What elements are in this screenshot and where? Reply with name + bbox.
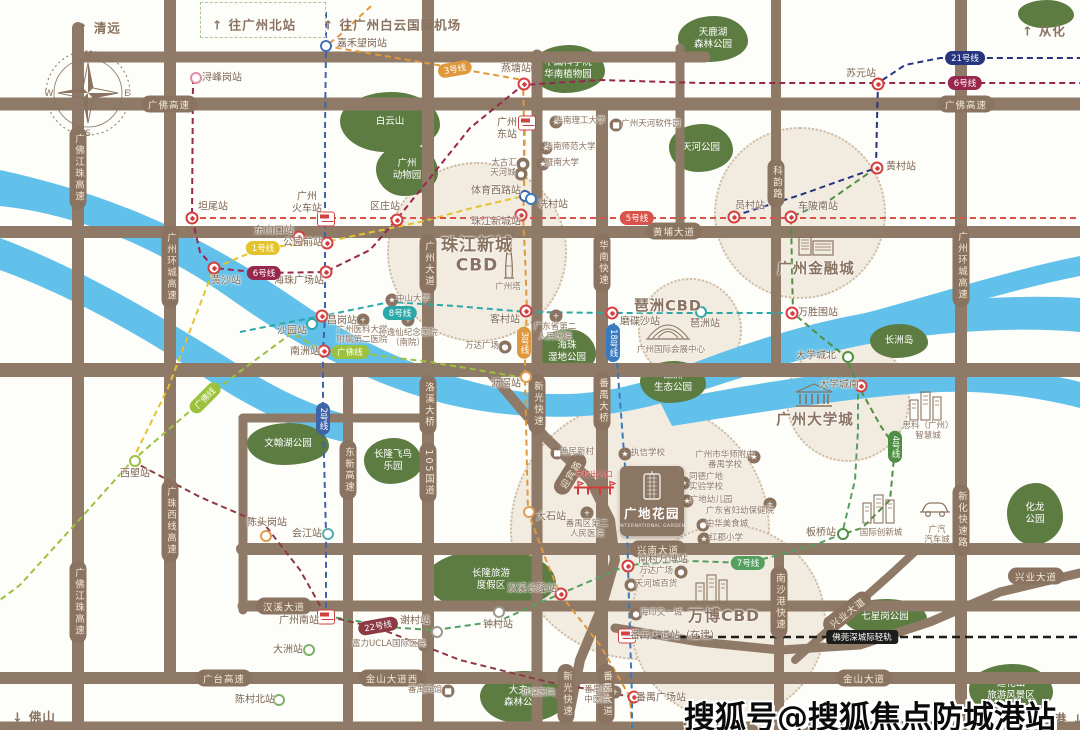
road-label: 番禺大桥 — [594, 371, 611, 431]
station-label: 体育西路站 — [471, 185, 521, 197]
district-label: 广州大学城 — [776, 413, 854, 430]
district-label: 万博CBD — [688, 608, 760, 626]
road-label: 东新高速 — [340, 440, 357, 500]
landmark-label: 国际创新城 — [860, 529, 903, 539]
mall-icon: ● — [499, 341, 512, 354]
station-label: 西塱站 — [120, 468, 150, 480]
landmark-label: 执信学校 — [631, 449, 665, 459]
gate-label: 学校出入口 — [572, 469, 616, 480]
landmark-label: 渔民新村 — [560, 448, 594, 458]
landmark-label: 广汽 汽车城 — [924, 526, 950, 546]
property-subtitle: INTERNATIONAL GARDEN — [619, 524, 686, 529]
line-badge: 7号线 — [731, 556, 765, 570]
landmark-label: 祈福医院 — [521, 689, 555, 699]
metro-station-icon[interactable] — [493, 606, 505, 618]
landmark-label: 广州天河软件园 — [621, 120, 681, 130]
station-label: 谢村站 — [400, 615, 430, 627]
road-label: 广州环城高速 — [953, 225, 970, 308]
landmark-label: 暨南大学 — [545, 159, 579, 169]
road-label: 科韵路 — [768, 159, 785, 208]
station-label: 番禺广场站 — [636, 692, 686, 704]
landmark-label: 番禺宾馆 — [408, 686, 442, 696]
metro-station-icon[interactable] — [320, 40, 332, 52]
road-label: 广州大道 — [420, 234, 437, 294]
station-label: 广州 东站 — [497, 118, 517, 141]
station-label: 大石站 — [536, 511, 566, 523]
metro-station-icon[interactable] — [525, 193, 537, 205]
metro-station-icon[interactable] — [837, 528, 849, 540]
station-label: 冼村站 — [538, 199, 568, 211]
metro-station-icon[interactable] — [606, 307, 619, 320]
road-label: 新光快速 — [558, 664, 575, 724]
metro-station-icon[interactable] — [842, 351, 854, 363]
metro-station-icon[interactable] — [129, 455, 141, 467]
landmark-label: 广东省妇幼保健院 — [706, 507, 774, 517]
station-label: 大洲站 — [273, 644, 303, 656]
station-label: 陈村北站 — [235, 694, 275, 706]
station-label: 大学城北 — [796, 350, 836, 362]
station-label: 广州 火车站 — [292, 192, 322, 215]
property-gate: 学校出入口 — [572, 469, 616, 500]
station-label: 苏元站 — [846, 68, 876, 80]
svg-text:N: N — [85, 50, 92, 60]
landmark-label: 华南师范大学 — [544, 143, 595, 153]
station-label: 嘉禾望岗站 — [337, 38, 387, 50]
metro-station-icon[interactable] — [208, 262, 221, 275]
road-label: 广佛高速 — [938, 96, 994, 113]
building-icon: ■ — [442, 685, 455, 698]
station-label: 番禺大道站（在建） — [630, 630, 720, 642]
property-name: 广地花园 — [624, 503, 680, 522]
landmark-label: 华南理工大学 — [554, 117, 605, 127]
station-label: 南村万博站 — [638, 554, 688, 566]
station-label: 钟村站 — [483, 619, 513, 631]
road-label: 金山大道 — [836, 670, 892, 687]
metro-station-icon[interactable] — [871, 162, 884, 175]
district-label: 珠江新城 CBD — [441, 236, 513, 275]
station-label: 汉溪长隆站 — [507, 583, 557, 595]
landmark-label: 番禺区第二 人民医院 — [566, 520, 609, 540]
metro-station-icon[interactable] — [520, 305, 533, 318]
station-label: 客村站 — [490, 314, 520, 326]
direction-arrow: ↑ 往广州北站 — [212, 15, 296, 34]
hospital-icon: + — [581, 507, 594, 520]
road-label: 新化快速路 — [953, 484, 970, 556]
mall-icon: ● — [515, 168, 528, 181]
road-label: 金山大道西 — [359, 670, 426, 687]
road-label: 南沙港快速 — [771, 566, 788, 638]
landmark-label: 同德广地 实验学校 — [689, 473, 723, 493]
station-label: 珠江新城站 — [471, 216, 521, 228]
line-badge: 广佛线 — [331, 345, 369, 359]
svg-text:E: E — [124, 89, 130, 99]
road-label: 广珠西线高速 — [162, 480, 179, 563]
metro-station-icon[interactable] — [190, 72, 202, 84]
road-label: 广佛江珠高速 — [70, 127, 87, 210]
station-label: 会江站 — [292, 528, 322, 540]
property-building-icon — [640, 471, 664, 501]
direction-arrow: ↑ 从化 — [1022, 21, 1066, 40]
line-badge: 5号线 — [620, 211, 654, 225]
skyline-icon — [859, 491, 899, 529]
metro-station-icon[interactable] — [520, 371, 532, 383]
station-label: 陈头岗站 — [247, 517, 287, 529]
landmark-label: 广地幼儿园 — [690, 496, 733, 506]
line-badge: 8号线 — [383, 306, 417, 320]
metro-station-icon[interactable] — [518, 78, 531, 91]
landmark-label: 万达广场 — [639, 567, 673, 577]
landmark-label: 海印又一城 — [640, 609, 683, 619]
metro-station-icon[interactable] — [786, 307, 799, 320]
line-badge: 6号线 — [948, 76, 982, 90]
station-label: 广州南站 — [279, 615, 319, 627]
line-badge: 4号线 — [888, 431, 902, 463]
station-label: 海珠广场站 — [274, 275, 324, 287]
landmark-label: 番禺区 中医院 — [584, 686, 610, 706]
road-label: 105国道 — [420, 442, 437, 503]
road-label: 洛溪大桥 — [420, 375, 437, 435]
station-label: 万胜围站 — [798, 307, 838, 319]
station-label: 坦尾站 — [198, 201, 228, 213]
landmark-label: 红郡小学 — [709, 534, 743, 544]
metro-station-icon[interactable] — [391, 214, 404, 227]
station-label: 东山口站 — [254, 225, 294, 237]
metro-station-icon[interactable] — [260, 530, 272, 542]
station-label: 沙园站 — [277, 325, 307, 337]
railway-station-icon[interactable] — [518, 116, 536, 131]
line-badge: 2号线 — [316, 403, 330, 435]
metro-station-icon[interactable] — [303, 644, 315, 656]
skyline-icon — [692, 571, 732, 609]
station-label: 南洲站 — [290, 346, 320, 358]
line-badge: 6号线 — [247, 266, 281, 280]
road-label: 广佛江珠高速 — [70, 561, 87, 644]
station-label: 区庄站 — [370, 201, 400, 213]
road-label: 华南快速 — [594, 233, 611, 293]
watermark: 搜狐号@搜狐焦点防城港站 — [684, 692, 1056, 730]
mall-icon: ● — [675, 566, 688, 579]
metro-station-icon[interactable] — [728, 211, 741, 224]
road-label: 广佛高速 — [141, 96, 197, 113]
station-label: 大学城南 — [819, 379, 859, 391]
direction-arrow: ↓ 佛山 — [12, 707, 56, 726]
metro-station-icon[interactable] — [431, 626, 443, 638]
landmark-label: 广东省第二 人民医院 — [534, 323, 577, 343]
road-label: 新光快速 — [529, 374, 546, 434]
school-icon: ★ — [619, 448, 632, 461]
landmark-label: 天河城百货 — [635, 580, 678, 590]
station-label: 车陂南站 — [798, 201, 838, 213]
compass-icon: N S E W — [42, 47, 134, 143]
metro-line — [132, 461, 632, 697]
road-label: 汉溪大道 — [256, 598, 312, 615]
landmark-label: 孙逸仙纪念医院 （南院） — [378, 329, 438, 349]
metro-station-icon[interactable] — [622, 560, 635, 573]
line-badge: 21号线 — [945, 51, 985, 65]
landmark-label: 广州国际会展中心 — [637, 346, 705, 356]
metro-station-icon[interactable] — [306, 318, 318, 330]
metro-line — [734, 58, 1080, 216]
station-label: 员村站 — [735, 200, 765, 212]
station-label: 板桥站 — [806, 527, 836, 539]
metro-station-icon[interactable] — [322, 528, 334, 540]
road-label: 兴业大道 — [1008, 568, 1064, 585]
road-label: 广台高速 — [196, 670, 252, 687]
metro-station-icon[interactable] — [186, 212, 199, 225]
metro-station-icon[interactable] — [523, 506, 535, 518]
property-card[interactable]: 广地花园 INTERNATIONAL GARDEN — [620, 466, 684, 536]
district-label: 广州金融城 — [777, 262, 855, 279]
line-badge: 1号线 — [246, 241, 280, 255]
road-label: 广州环城高速 — [162, 226, 179, 309]
landmark-label: 中华美食城 — [706, 520, 749, 530]
landmark-label: 思科（广州） 智慧城 — [902, 422, 953, 442]
station-label: 公园前站 — [283, 237, 323, 249]
road-label: 黄埔大道 — [646, 223, 702, 240]
station-label: 燕塘站 — [501, 63, 531, 75]
landmark-label: 广州市华师附中 番禺学校 — [695, 451, 755, 471]
direction-arrow: ↑ 清远 — [77, 18, 121, 37]
landmark-label: 万达广场 — [465, 342, 499, 352]
station-label: 黄沙站 — [211, 275, 241, 287]
station-label: 沥滘站 — [491, 378, 521, 390]
railway-station-icon[interactable] — [317, 610, 335, 625]
direction-arrow: ↑ 往广州白云国际机场 — [323, 15, 461, 34]
car-icon — [918, 500, 952, 522]
station-label: 琶洲站 — [690, 318, 720, 330]
intercity-badge: 佛莞深城际轻轨 — [826, 630, 898, 644]
line-badge: 3号线 — [517, 327, 531, 359]
svg-text:W: W — [45, 89, 54, 99]
station-label: 浔峰岗站 — [202, 72, 242, 84]
metro-station-icon[interactable] — [785, 211, 798, 224]
landmark-label: 中山大学 — [396, 295, 430, 305]
district-label: 琶洲CBD — [634, 299, 702, 316]
landmark-label: 天河城 — [490, 169, 516, 179]
station-label: 磨碟沙站 — [620, 316, 660, 328]
landmark-label: 富力UCLA国际医院 — [352, 640, 426, 650]
bank-icon — [796, 231, 836, 261]
landmark-label: 广州塔 — [495, 283, 521, 293]
line-badge: 18号线 — [606, 324, 620, 362]
hospital-icon: + — [550, 310, 563, 323]
map-canvas: N S E W 广地花园 INTERNATIONAL GARDEN 学校出入口 … — [0, 0, 1080, 730]
gate-icon — [572, 480, 616, 496]
station-label: 黄村站 — [886, 161, 916, 173]
